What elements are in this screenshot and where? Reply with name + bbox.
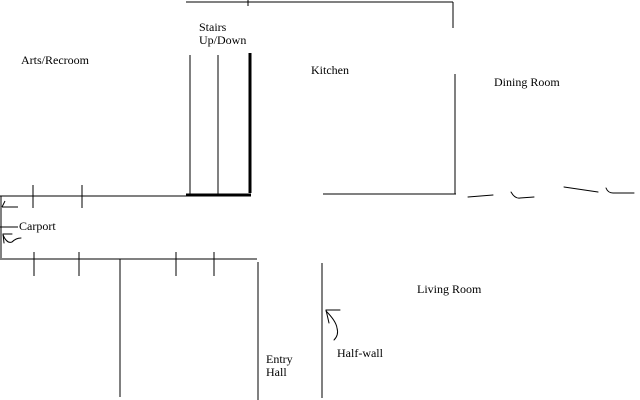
entry-hall-label: Entry Hall [266,353,293,379]
dashed-open-wall [468,187,634,198]
floor-plan-drawing [0,0,640,400]
top-wall [186,0,453,6]
carport-door-tick [2,201,5,207]
half-wall-arrow-icon [326,310,340,340]
dining-room-label: Dining Room [494,76,560,89]
kitchen-right-wall [453,2,455,194]
arts-recroom-label: Arts/Recroom [21,54,89,67]
lower-wall [0,252,257,276]
middle-wall [0,185,251,208]
stairs-label-line2: Up/Down [199,34,246,47]
living-room-label: Living Room [417,283,481,296]
stairs-label: Stairs Up/Down [199,21,246,47]
entry-hall-label-line2: Hall [266,366,293,379]
kitchen-label: Kitchen [311,64,349,77]
carport-label: Carport [19,220,56,233]
stairs-lines [190,53,250,195]
carport-arrow-icon [3,234,21,243]
half-wall-label: Half-wall [337,347,383,360]
